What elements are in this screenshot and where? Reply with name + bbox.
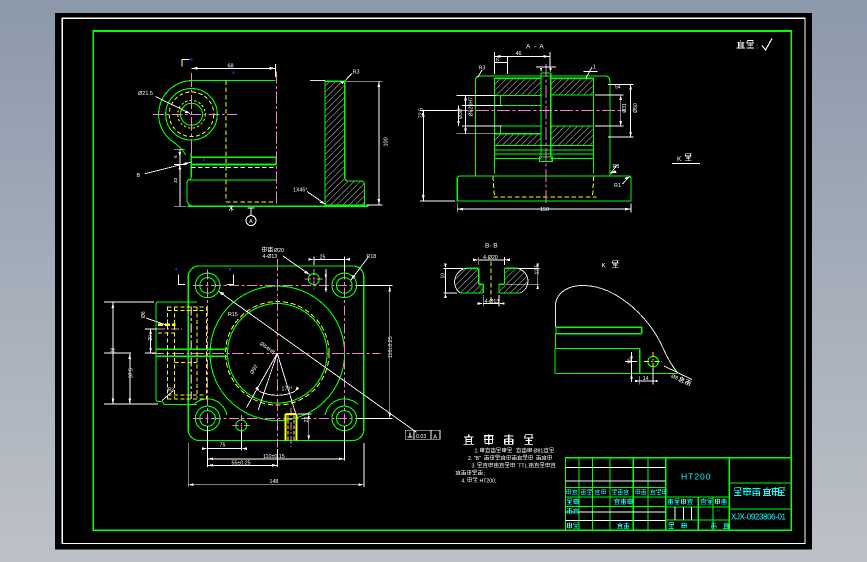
svg-text:`TTL: `TTL <box>517 464 528 470</box>
svg-text:4-Ø20: 4-Ø20 <box>483 255 498 261</box>
svg-text::: : <box>756 44 758 51</box>
svg-text:XJX-0923806-01: XJX-0923806-01 <box>731 513 787 522</box>
svg-text:R3: R3 <box>613 164 620 170</box>
svg-text:20: 20 <box>148 335 154 341</box>
svg-text:98: 98 <box>110 348 116 354</box>
svg-text:148: 148 <box>270 479 279 485</box>
svg-text:150: 150 <box>540 207 549 213</box>
svg-text:R3: R3 <box>479 65 486 71</box>
svg-text:Ø50: Ø50 <box>633 103 639 113</box>
svg-text:B- B: B- B <box>485 242 498 249</box>
svg-text:R3: R3 <box>353 70 360 76</box>
svg-text:4.: 4. <box>462 478 466 484</box>
svg-text:A: A <box>249 219 253 225</box>
svg-text:3.: 3. <box>472 464 476 470</box>
svg-text:10: 10 <box>627 358 633 364</box>
svg-text:54: 54 <box>615 85 621 91</box>
svg-text:0.03: 0.03 <box>416 434 426 440</box>
svg-text:110±0.15: 110±0.15 <box>263 454 285 460</box>
svg-text:HT200;: HT200; <box>480 478 497 484</box>
svg-text:A: A <box>433 434 437 440</box>
svg-text:55±0.25: 55±0.25 <box>232 460 251 466</box>
svg-text:37.5: 37.5 <box>128 368 134 378</box>
svg-text:100: 100 <box>384 137 390 146</box>
svg-text:K: K <box>677 156 682 163</box>
svg-text:;: ; <box>484 471 485 477</box>
svg-text:110±0.25: 110±0.25 <box>388 336 394 358</box>
svg-text:' ': ' ' <box>717 510 720 516</box>
svg-text:2. "B": 2. "B" <box>468 456 481 462</box>
svg-text:23: 23 <box>304 417 310 423</box>
svg-text:1X45°: 1X45° <box>293 187 308 193</box>
svg-text:A - A: A - A <box>526 44 545 51</box>
svg-text:HT200: HT200 <box>681 472 712 482</box>
svg-text:B: B <box>137 173 141 179</box>
svg-text:46: 46 <box>516 51 522 57</box>
svg-text:R18: R18 <box>367 254 377 260</box>
svg-text:4-Ø13: 4-Ø13 <box>263 254 278 260</box>
svg-text:12.5: 12.5 <box>535 265 541 275</box>
svg-text:14: 14 <box>643 376 649 382</box>
svg-text:R15: R15 <box>228 312 238 318</box>
svg-text:Ø81: Ø81 <box>534 449 544 455</box>
svg-text:170°: 170° <box>282 386 293 392</box>
svg-text:1: 1 <box>593 65 596 71</box>
svg-text:6: 6 <box>496 58 499 64</box>
svg-text:5: 5 <box>173 155 179 158</box>
svg-text:Ø31: Ø31 <box>622 103 628 113</box>
svg-text:K: K <box>602 263 607 270</box>
svg-text:R3: R3 <box>168 388 175 394</box>
svg-text:4-Ø13: 4-Ø13 <box>485 299 500 305</box>
svg-text:72.5: 72.5 <box>418 108 424 118</box>
svg-text:25: 25 <box>320 254 326 260</box>
svg-text:75: 75 <box>220 442 226 448</box>
svg-text:68: 68 <box>228 63 234 69</box>
svg-text:R1: R1 <box>614 183 621 189</box>
svg-text:1.: 1. <box>475 449 479 455</box>
svg-text:Ø6: Ø6 <box>141 311 147 318</box>
svg-text:10: 10 <box>440 273 446 279</box>
svg-text:Ø38: Ø38 <box>458 109 464 119</box>
svg-text:Ø62SH7: Ø62SH7 <box>469 97 475 116</box>
svg-text:33: 33 <box>173 177 179 183</box>
svg-text:Ø21.5: Ø21.5 <box>138 91 153 97</box>
